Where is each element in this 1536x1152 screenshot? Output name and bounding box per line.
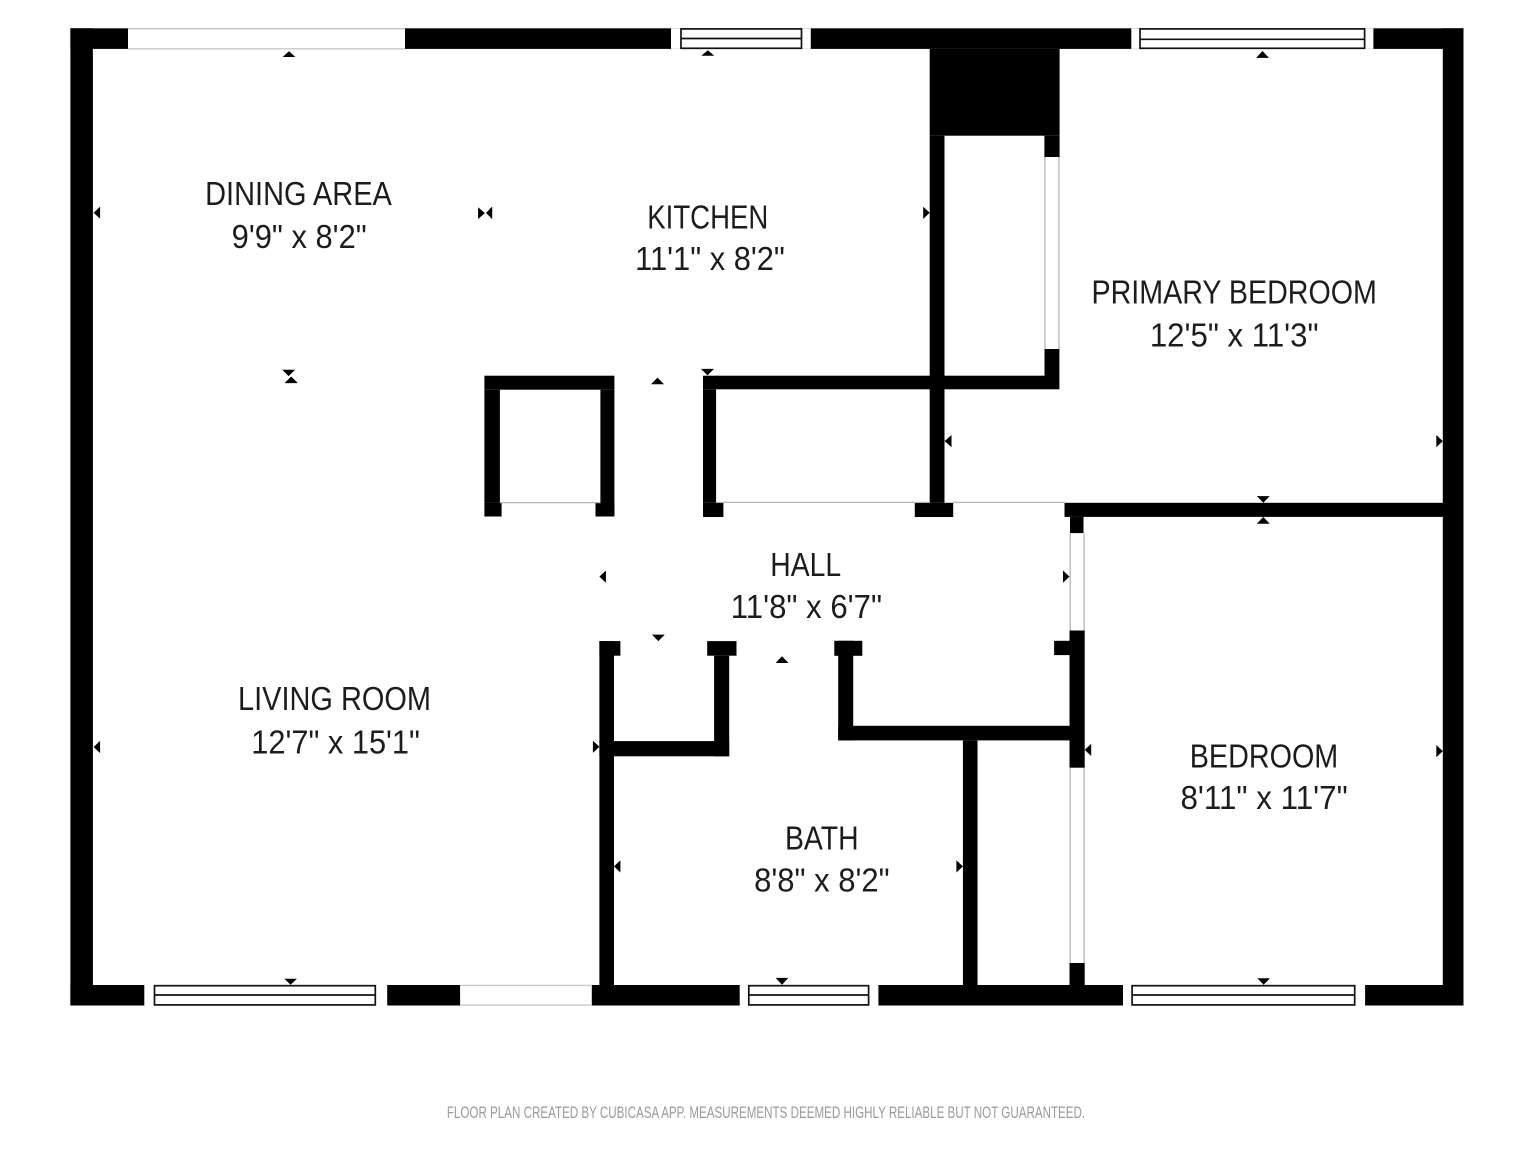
svg-text:12'7" x 15'1": 12'7" x 15'1" — [251, 725, 420, 762]
svg-text:KITCHEN: KITCHEN — [647, 200, 768, 237]
svg-text:LIVING ROOM: LIVING ROOM — [238, 681, 431, 718]
svg-text:8'11" x 11'7": 8'11" x 11'7" — [1181, 780, 1348, 817]
svg-text:11'1" x 8'2": 11'1" x 8'2" — [635, 241, 785, 278]
svg-text:FLOOR PLAN CREATED BY CUBICASA: FLOOR PLAN CREATED BY CUBICASA APP. MEAS… — [447, 1103, 1085, 1122]
svg-text:12'5" x 11'3": 12'5" x 11'3" — [1150, 317, 1319, 354]
svg-text:8'8" x 8'2": 8'8" x 8'2" — [754, 863, 890, 900]
svg-text:BATH: BATH — [785, 820, 859, 857]
svg-text:HALL: HALL — [770, 547, 841, 584]
svg-text:PRIMARY BEDROOM: PRIMARY BEDROOM — [1092, 275, 1377, 312]
svg-text:DINING AREA: DINING AREA — [205, 176, 392, 213]
svg-text:11'8" x 6'7": 11'8" x 6'7" — [731, 589, 882, 626]
svg-text:9'9" x 8'2": 9'9" x 8'2" — [232, 219, 367, 256]
svg-text:BEDROOM: BEDROOM — [1190, 739, 1339, 776]
